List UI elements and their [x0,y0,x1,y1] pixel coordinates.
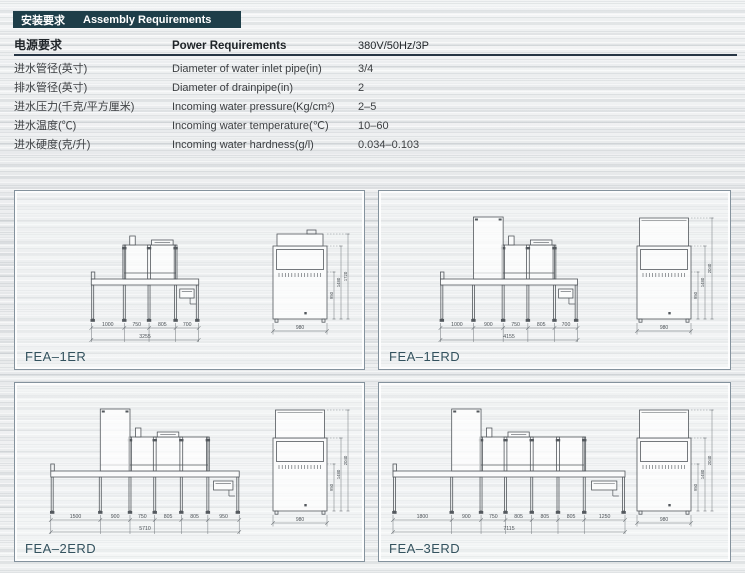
svg-text:805: 805 [514,514,523,520]
row-label-zh: 进水硬度(克/升) [14,136,172,152]
svg-text:700: 700 [562,322,571,328]
svg-text:1480: 1480 [336,469,341,479]
svg-text:3255: 3255 [139,334,151,340]
section-title-bar: 安装要求 Assembly Requirements [13,11,241,28]
svg-text:2040: 2040 [707,263,712,273]
table-row: 排水管径(英寸) Diameter of drainpipe(in) 2 [14,79,737,98]
model-label: FEA–1ERD [389,349,460,364]
section-title-en: Assembly Requirements [83,14,211,26]
svg-text:1000: 1000 [102,322,114,328]
svg-text:950: 950 [219,514,228,520]
svg-text:4155: 4155 [503,334,515,340]
table-row: 进水管径(英寸) Diameter of water inlet pipe(in… [14,60,737,79]
row-value: 0.034–0.103 [358,139,737,151]
row-label-en: Diameter of water inlet pipe(in) [172,63,358,75]
svg-text:1250: 1250 [599,514,611,520]
svg-text:1480: 1480 [336,277,341,287]
table-header-en: Power Requirements [172,40,358,52]
diagram-panel-fea-1erd: 1000900750805700415598095014802040 FEA–1… [378,190,731,370]
svg-text:900: 900 [111,514,120,520]
svg-text:1800: 1800 [417,514,429,520]
svg-text:950: 950 [693,291,698,299]
svg-text:7115: 7115 [503,526,514,532]
row-value: 2–5 [358,101,737,113]
svg-text:900: 900 [462,514,471,520]
svg-text:950: 950 [329,483,334,491]
diagram-panel-fea-1er: 1000750805700325598095014801720 FEA–1ER [14,190,365,370]
table-row: 进水压力(千克/平方厘米) Incoming water pressure(Kg… [14,98,737,117]
svg-text:1480: 1480 [700,277,705,287]
svg-text:805: 805 [541,514,550,520]
row-value: 3/4 [358,63,737,75]
diagram-panel-fea-3erd: 1800900750805805805125071159809501480204… [378,382,731,562]
svg-text:1720: 1720 [343,271,348,281]
row-label-zh: 排水管径(英寸) [14,79,172,95]
catalog-page: { "header": { "zh": "安装要求", "en": "Assem… [0,0,745,573]
svg-text:950: 950 [693,483,698,491]
row-label-en: Diameter of drainpipe(in) [172,82,358,94]
svg-text:805: 805 [537,322,546,328]
row-value: 10–60 [358,120,737,132]
model-label: FEA–1ER [25,349,86,364]
svg-text:750: 750 [132,322,141,328]
svg-text:750: 750 [489,514,498,520]
svg-text:700: 700 [183,322,192,328]
svg-text:900: 900 [484,322,493,328]
table-row: 进水温度(℃) Incoming water temperature(℃) 10… [14,117,737,136]
svg-text:2040: 2040 [343,455,348,465]
svg-text:805: 805 [567,514,576,520]
svg-text:950: 950 [329,291,334,299]
section-title-zh: 安装要求 [21,12,65,28]
svg-text:750: 750 [138,514,147,520]
svg-text:1000: 1000 [451,322,463,328]
svg-text:2040: 2040 [707,455,712,465]
svg-text:805: 805 [164,514,173,520]
svg-text:1480: 1480 [700,469,705,479]
table-header-row: 电源要求 Power Requirements 380V/50Hz/3P [14,36,737,56]
svg-text:805: 805 [190,514,199,520]
row-value: 2 [358,82,737,94]
table-header-zh: 电源要求 [14,36,172,53]
row-label-zh: 进水温度(℃) [14,117,172,133]
svg-text:1500: 1500 [70,514,82,520]
svg-text:805: 805 [158,322,167,328]
table-row: 进水硬度(克/升) Incoming water hardness(g/l) 0… [14,136,737,155]
diagram-panel-fea-2erd: 1500900750805805950571098095014802040 FE… [14,382,365,562]
svg-text:5710: 5710 [139,526,151,532]
row-label-zh: 进水管径(英寸) [14,60,172,76]
table-header-value: 380V/50Hz/3P [358,40,737,52]
row-label-en: Incoming water hardness(g/l) [172,139,358,151]
model-label: FEA–2ERD [25,541,96,556]
svg-text:980: 980 [296,517,305,523]
svg-text:750: 750 [511,322,520,328]
requirements-table: 电源要求 Power Requirements 380V/50Hz/3P 进水管… [14,36,737,155]
row-label-en: Incoming water temperature(℃) [172,119,358,132]
row-label-zh: 进水压力(千克/平方厘米) [14,98,172,114]
svg-text:980: 980 [660,325,669,331]
row-label-en: Incoming water pressure(Kg/cm²) [172,101,358,113]
svg-text:980: 980 [296,325,305,331]
model-label: FEA–3ERD [389,541,460,556]
svg-text:980: 980 [660,517,669,523]
